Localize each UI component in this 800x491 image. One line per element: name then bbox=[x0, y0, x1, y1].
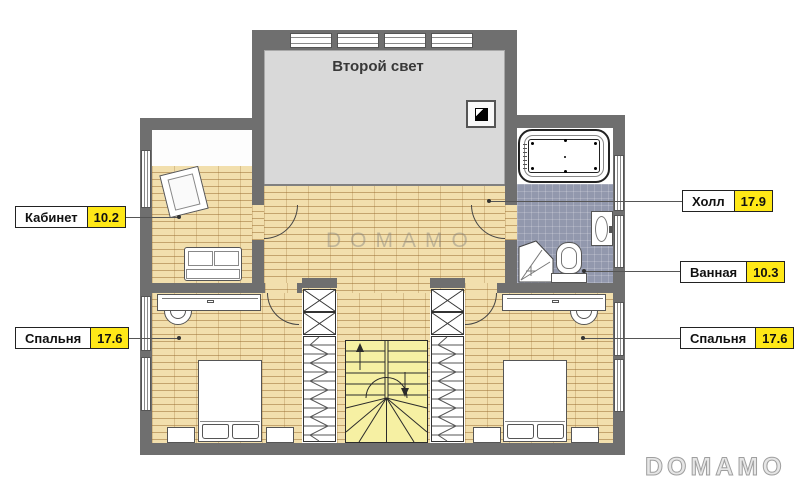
dresser bbox=[502, 294, 606, 311]
bathroom-door-threshold bbox=[505, 205, 517, 240]
dresser bbox=[157, 294, 261, 311]
chimney-flue-icon bbox=[475, 108, 488, 121]
floor-plan: Второй свет bbox=[0, 0, 800, 491]
dresser-handle bbox=[552, 300, 559, 303]
sofa-cushion bbox=[188, 251, 213, 266]
room-label-bathroom: Ванная bbox=[680, 261, 747, 283]
second-light-edge bbox=[264, 184, 505, 186]
callout-hall: Холл 17.9 bbox=[682, 190, 773, 212]
nightstand bbox=[167, 427, 195, 443]
room-label-hall: Холл bbox=[682, 190, 735, 212]
room-area-bedroom-right: 17.6 bbox=[756, 327, 794, 349]
window-top-4 bbox=[431, 33, 473, 48]
nightstand bbox=[571, 427, 599, 443]
window-bedroom-right-1 bbox=[614, 302, 624, 356]
bathtub bbox=[518, 129, 610, 183]
wall-bedroom-left-top bbox=[140, 283, 265, 293]
window-top-3 bbox=[384, 33, 426, 48]
pillow bbox=[537, 424, 564, 439]
window-top-2 bbox=[337, 33, 379, 48]
pillow bbox=[507, 424, 534, 439]
room-label-bedroom-right: Спальня bbox=[680, 327, 756, 349]
room-label-bedroom-left: Спальня bbox=[15, 327, 91, 349]
staircase bbox=[345, 340, 428, 443]
window-bedroom-left-2 bbox=[141, 357, 151, 411]
office-upper-strip bbox=[152, 130, 254, 166]
window-bathroom-1 bbox=[614, 155, 624, 211]
callout-bathroom: Ванная 10.3 bbox=[680, 261, 785, 283]
toilet-bowl-inner bbox=[561, 247, 577, 269]
room-area-bedroom-left: 17.6 bbox=[91, 327, 129, 349]
wall-left-wing-top bbox=[140, 118, 264, 130]
room-label-office: Кабинет bbox=[15, 206, 88, 228]
room-area-hall: 17.9 bbox=[735, 190, 773, 212]
chimney-icon bbox=[466, 100, 496, 128]
window-bathroom-2 bbox=[614, 215, 624, 268]
window-office bbox=[141, 150, 151, 208]
sink-tap bbox=[609, 226, 613, 233]
dresser-line bbox=[507, 298, 603, 299]
sofa bbox=[184, 247, 242, 281]
bed-blanket-line bbox=[505, 421, 565, 422]
bed bbox=[198, 360, 262, 442]
wardrobe-shaft-right-top bbox=[431, 289, 464, 335]
callout-office: Кабинет 10.2 bbox=[15, 206, 126, 228]
callout-line-office bbox=[120, 217, 180, 218]
desk-top bbox=[168, 173, 201, 210]
sofa-cushion bbox=[214, 251, 239, 266]
callout-dot-bedroom-right bbox=[581, 336, 585, 340]
callout-line-bedroom-right bbox=[583, 338, 680, 339]
window-top-1 bbox=[290, 33, 332, 48]
callout-dot-hall bbox=[487, 199, 491, 203]
wall-right-wing-top bbox=[505, 115, 625, 128]
wardrobe-shaft-left-top bbox=[303, 289, 336, 335]
window-bedroom-left-1 bbox=[141, 296, 151, 351]
room-area-office: 10.2 bbox=[88, 206, 126, 228]
watermark-center: DOMAMO bbox=[326, 229, 477, 253]
sink-basin bbox=[595, 216, 608, 242]
callout-dot-bathroom bbox=[582, 269, 586, 273]
callout-bedroom-left: Спальня 17.6 bbox=[15, 327, 129, 349]
sink bbox=[591, 211, 613, 246]
nightstand bbox=[266, 427, 294, 443]
wardrobe-shaft-left-shelves bbox=[303, 336, 336, 442]
bed bbox=[503, 360, 567, 442]
shower bbox=[518, 240, 554, 283]
toilet-tank bbox=[551, 273, 587, 283]
bed-blanket-line bbox=[200, 421, 260, 422]
callout-line-hall bbox=[489, 201, 682, 202]
callout-line-bathroom bbox=[584, 271, 680, 272]
nightstand bbox=[473, 427, 501, 443]
room-area-bathroom: 10.3 bbox=[747, 261, 785, 283]
callout-line-bedroom-left bbox=[122, 338, 180, 339]
radiator-fan bbox=[569, 311, 599, 327]
wall-shaft-left-cap bbox=[302, 278, 337, 288]
radiator-fan bbox=[163, 311, 193, 327]
window-bedroom-right-2 bbox=[614, 359, 624, 412]
dresser-handle bbox=[207, 300, 214, 303]
wardrobe-shaft-right-shelves bbox=[431, 336, 464, 442]
bathtub-steps bbox=[523, 144, 527, 170]
sofa-back bbox=[186, 269, 240, 279]
office-door-threshold bbox=[252, 205, 264, 240]
second-light-label: Второй свет bbox=[318, 57, 438, 77]
dresser-line bbox=[162, 298, 258, 299]
watermark-corner: DOMAMO bbox=[645, 453, 786, 482]
callout-bedroom-right: Спальня 17.6 bbox=[680, 327, 794, 349]
wall-shaft-right-cap bbox=[430, 278, 465, 288]
callout-dot-office bbox=[177, 215, 181, 219]
bedroom-right-door-threshold bbox=[465, 283, 497, 293]
bedroom-left-door-threshold bbox=[265, 283, 297, 293]
callout-dot-bedroom-left bbox=[177, 336, 181, 340]
wall-bedroom-right-top bbox=[497, 283, 625, 293]
pillow bbox=[232, 424, 259, 439]
wall-outer-bottom bbox=[140, 443, 625, 455]
pillow bbox=[202, 424, 229, 439]
toilet-bowl bbox=[556, 242, 582, 274]
bathtub-basin bbox=[528, 139, 600, 173]
